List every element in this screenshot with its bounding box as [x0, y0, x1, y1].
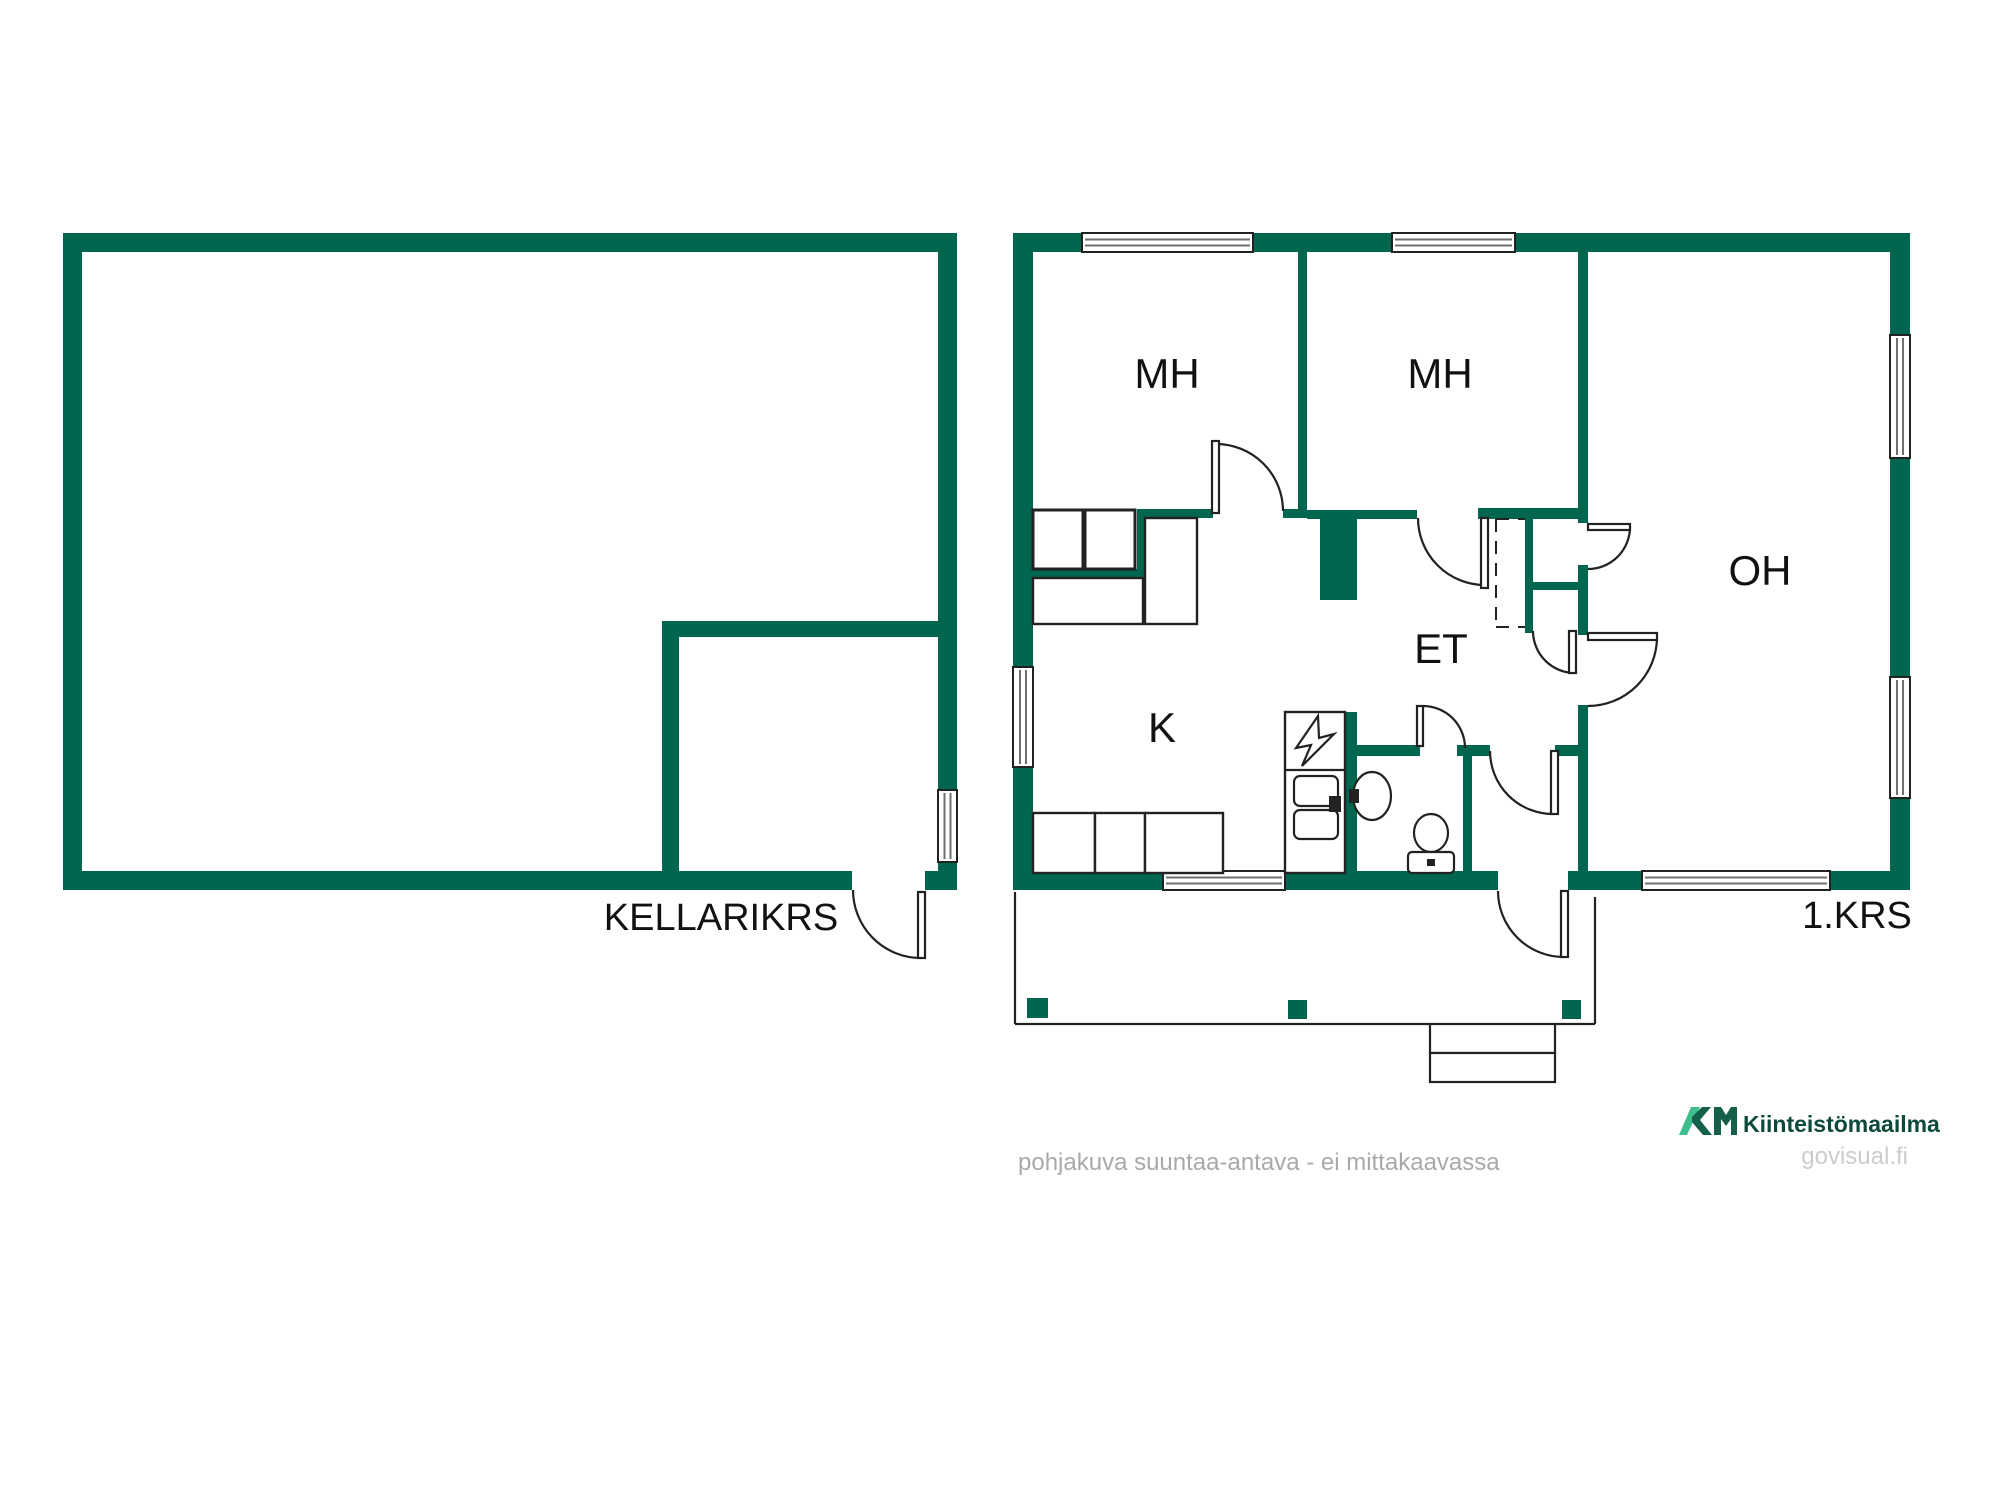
wall — [1298, 252, 1307, 518]
wall — [63, 233, 957, 252]
window — [1890, 677, 1910, 798]
km-logo-icon — [1679, 1107, 1737, 1135]
room-label-living-room: OH — [1729, 547, 1792, 594]
door-leaf — [1417, 706, 1423, 746]
wall — [925, 871, 957, 890]
door-swing-arc — [1498, 891, 1564, 957]
floorplan-drawing: MH MH OH ET K KELLARIKRS 1.KRS Kiinteist… — [0, 0, 2000, 1500]
wall — [63, 871, 852, 890]
wall — [1463, 756, 1472, 871]
window — [1013, 667, 1033, 767]
floor-label-basement: KELLARIKRS — [604, 897, 838, 939]
terrace-step — [1430, 1053, 1555, 1082]
washbasin-tap — [1349, 789, 1359, 803]
terrace-post — [1288, 1000, 1307, 1019]
wall — [1137, 509, 1213, 518]
wall — [1320, 518, 1357, 600]
door-swing-arc — [1423, 706, 1465, 748]
door-swing-arc — [1588, 637, 1657, 706]
wall — [1532, 582, 1580, 590]
wall — [1578, 565, 1588, 635]
window — [1392, 233, 1515, 252]
room-label-bedroom2: MH — [1407, 350, 1472, 397]
room-label-bedroom1: MH — [1134, 350, 1199, 397]
wall — [1578, 252, 1588, 523]
furniture — [1145, 813, 1223, 873]
furniture — [1145, 518, 1197, 624]
furniture — [1085, 510, 1135, 569]
km-logo-m — [1714, 1107, 1737, 1135]
toilet-bowl — [1414, 814, 1448, 852]
disclaimer: pohjakuva suuntaa-antava - ei mittakaava… — [1018, 1149, 1500, 1176]
door-leaf — [1551, 751, 1558, 814]
furniture — [1033, 813, 1095, 873]
wall — [938, 252, 957, 790]
wall — [1478, 508, 1588, 519]
wall — [662, 621, 940, 637]
faucet — [1329, 796, 1341, 812]
furniture — [1095, 813, 1145, 873]
terrace-step — [1430, 1024, 1555, 1053]
room-label-kitchen: K — [1148, 704, 1176, 751]
window — [938, 790, 957, 862]
floor-label-first-floor: 1.KRS — [1802, 895, 1912, 937]
sink-bowl — [1294, 810, 1338, 839]
door-leaf — [1588, 524, 1630, 530]
furniture — [1033, 510, 1083, 569]
wall — [1457, 745, 1490, 756]
wall — [662, 621, 679, 871]
door-leaf — [1212, 441, 1219, 513]
door-swing-arc — [1216, 444, 1283, 511]
door-leaf — [1561, 891, 1568, 957]
floorplan-geometry-layer — [63, 233, 1910, 1082]
door-leaf — [918, 892, 925, 958]
furniture — [1033, 578, 1143, 624]
wall — [938, 862, 957, 871]
door-swing-arc — [1588, 527, 1630, 569]
door-swing-arc — [1418, 518, 1485, 585]
door-swing-arc — [853, 890, 921, 958]
flush-button — [1427, 859, 1435, 866]
wall — [1525, 518, 1533, 633]
room-label-hallway: ET — [1414, 625, 1468, 672]
wall — [63, 252, 82, 890]
wall — [1578, 705, 1588, 871]
site-credit: govisual.fi — [1801, 1143, 1908, 1170]
wall — [1283, 509, 1307, 518]
window — [1890, 335, 1910, 458]
window — [1082, 233, 1253, 252]
brand-name: Kiinteistömaailma — [1743, 1111, 1940, 1137]
wall — [1307, 510, 1417, 519]
door-leaf — [1569, 631, 1576, 673]
door-leaf — [1588, 633, 1657, 640]
terrace-post — [1562, 1000, 1581, 1019]
wall — [1357, 745, 1420, 756]
terrace-post — [1027, 998, 1048, 1018]
door-leaf — [1481, 518, 1488, 588]
door-swing-arc — [1490, 751, 1553, 814]
window — [1642, 871, 1830, 890]
floorplan-page: MH MH OH ET K KELLARIKRS 1.KRS Kiinteist… — [0, 0, 2000, 1500]
wall — [1013, 252, 1033, 871]
